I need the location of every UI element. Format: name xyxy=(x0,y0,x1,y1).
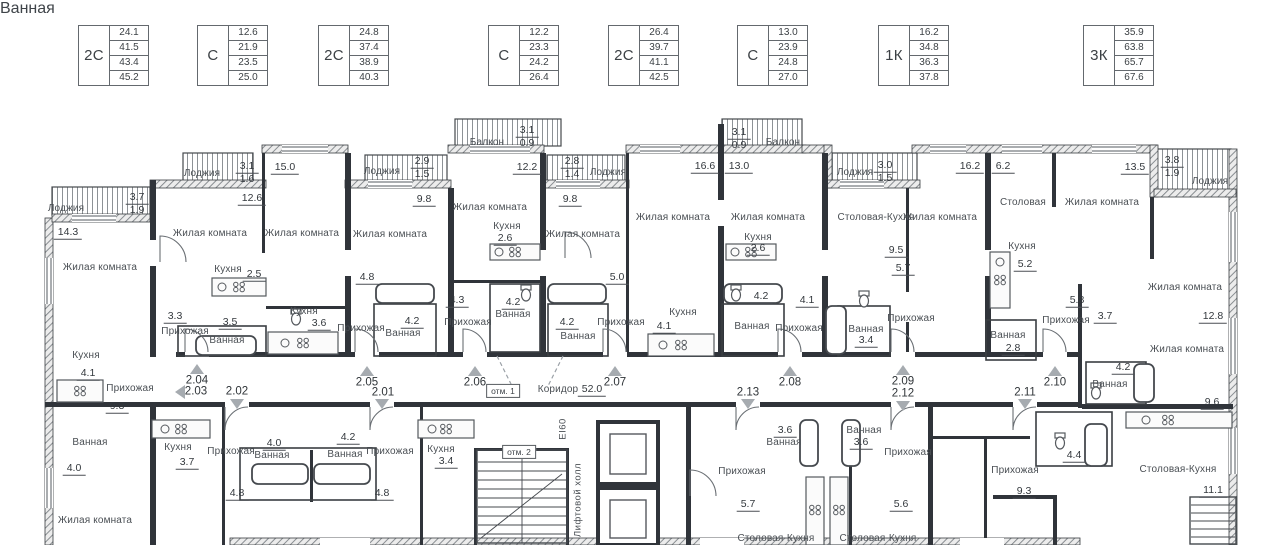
area-label: 3.6 xyxy=(850,437,873,450)
room-label: Прихожая xyxy=(207,447,255,457)
apartment-number-2-02[interactable]: 2.02 xyxy=(226,386,248,398)
elevation-mark-2: отм. 2 xyxy=(502,445,536,459)
entrance-direction-icon xyxy=(375,399,389,409)
entrance-direction-icon xyxy=(468,366,482,376)
room-label: Жилая комната xyxy=(63,263,137,273)
area-label: 12.8 xyxy=(1199,311,1227,324)
apartment-number-2-04[interactable]: 2.04 xyxy=(186,375,208,387)
area-label: 3.1 xyxy=(728,127,751,140)
area-label: 14.3 xyxy=(54,227,82,240)
area-label: 3.4 xyxy=(435,456,458,469)
dashed-guides xyxy=(497,356,563,386)
room-label: Жилая комната xyxy=(58,516,132,526)
apartment-number-2-08[interactable]: 2.08 xyxy=(779,377,801,389)
area-label: 13.0 xyxy=(725,161,753,174)
room-label: Кухня xyxy=(72,351,100,361)
room-label: Ванная xyxy=(766,438,801,448)
area-label: 13.5 xyxy=(1121,162,1149,175)
area-label: 3.0 xyxy=(874,160,897,173)
corridor-label: Коридор xyxy=(538,385,579,395)
area-label: 4.2 xyxy=(502,297,525,310)
apartment-number-2-13[interactable]: 2.13 xyxy=(737,387,759,399)
room-label: Лоджия xyxy=(837,168,873,178)
room-label: Кухня xyxy=(290,307,318,317)
room-label: Ванная xyxy=(254,451,289,461)
area-label: 1.9 xyxy=(1161,167,1184,180)
area-label: 2.8 xyxy=(561,156,584,169)
room-label: Лоджия xyxy=(590,168,626,178)
room-label: Ванная xyxy=(846,426,881,436)
room-label: Балкон xyxy=(766,138,800,148)
room-label: Прихожая xyxy=(106,384,154,394)
room-label: Жилая комната xyxy=(731,213,805,223)
room-label: Прихожая xyxy=(1042,316,1090,326)
entrance-direction-icon xyxy=(360,366,374,376)
room-label: Столовая-Кухня xyxy=(840,534,917,544)
floor-plan-page: 2С24.141.543.445.2 С12.621.923.525.0 2С2… xyxy=(0,0,1280,545)
area-label: 4.2 xyxy=(1112,362,1135,375)
area-label: 3.7 xyxy=(126,192,149,205)
area-label: 16.6 xyxy=(691,161,719,174)
area-label: 2.6 xyxy=(747,243,770,256)
area-label: 2.5 xyxy=(243,269,266,282)
area-label: 1.6 xyxy=(236,173,259,186)
area-label: 9.8 xyxy=(413,194,436,207)
area-label: 4.0 xyxy=(63,463,86,476)
room-label: Ванная xyxy=(560,332,595,342)
area-label: 4.1 xyxy=(653,321,676,334)
room-label: Прихожая xyxy=(444,318,492,328)
area-label: 3.7 xyxy=(176,457,199,470)
area-label: 1.4 xyxy=(561,168,584,181)
area-label: 4.4 xyxy=(1063,450,1086,463)
area-label: 4.0 xyxy=(263,438,286,451)
room-label: Жилая комната xyxy=(265,229,339,239)
area-label: 16.2 xyxy=(956,161,984,174)
room-label: Ванная xyxy=(734,322,769,332)
room-label: Кухня xyxy=(427,445,455,455)
room-label: Балкон xyxy=(470,138,504,148)
entrance-direction-icon xyxy=(1048,366,1062,376)
room-label: Жилая комната xyxy=(903,213,977,223)
area-label: 3.6 xyxy=(774,425,797,438)
area-label: 3.3 xyxy=(164,311,187,324)
entrance-direction-icon xyxy=(896,365,910,375)
area-label: 9.3 xyxy=(106,401,129,414)
room-label: Прихожая xyxy=(161,327,209,337)
area-label: 4.3 xyxy=(446,295,469,308)
room-label: Лоджия xyxy=(364,167,400,177)
area-label: 4.1 xyxy=(796,295,819,308)
area-label: 9.5 xyxy=(885,245,908,258)
entrance-direction-icon xyxy=(175,385,185,399)
room-label: Жилая комната xyxy=(353,230,427,240)
area-label: 4.8 xyxy=(356,272,379,285)
room-label: Ванная xyxy=(1092,380,1127,390)
area-label: 0.9 xyxy=(728,139,751,152)
area-label: 1.5 xyxy=(411,168,434,181)
room-label: Прихожая xyxy=(884,448,932,458)
area-label: 1.9 xyxy=(126,204,149,217)
apartment-number-2-09[interactable]: 2.09 xyxy=(892,376,914,388)
area-label: 3.8 xyxy=(1161,155,1184,168)
apartment-number-2-10[interactable]: 2.10 xyxy=(1044,377,1066,389)
room-label: Ванная xyxy=(327,450,362,460)
room-label: Лоджия xyxy=(1192,177,1228,187)
room-label: Ванная xyxy=(990,331,1025,341)
area-label: 12.6 xyxy=(238,193,266,206)
area-label: 11.1 xyxy=(1199,485,1227,498)
room-label: Жилая комната xyxy=(1065,198,1139,208)
area-label: 9.3 xyxy=(1013,486,1036,499)
room-label: Ванная xyxy=(72,438,107,448)
area-label: 3.6 xyxy=(308,318,331,331)
room-label: Кухня xyxy=(164,443,192,453)
area-label: 12.2 xyxy=(513,162,541,175)
room-label: Жилая комната xyxy=(636,213,710,223)
apartment-number-2-05[interactable]: 2.05 xyxy=(356,377,378,389)
area-label: 2.8 xyxy=(1002,343,1025,356)
room-label: Жилая комната xyxy=(173,229,247,239)
room-label: Жилая комната xyxy=(1150,345,1224,355)
area-label: 15.0 xyxy=(271,162,299,175)
room-label: Ванная xyxy=(495,310,530,320)
room-label: Прихожая xyxy=(718,467,766,477)
area-label: 9.8 xyxy=(559,194,582,207)
entrance-direction-icon xyxy=(230,399,244,409)
room-label: Столовая xyxy=(1000,198,1046,208)
area-label: 4.2 xyxy=(556,317,579,330)
room-label: Кухня xyxy=(214,265,242,275)
area-label: 4.2 xyxy=(401,316,424,329)
room-label: Кухня xyxy=(1008,242,1036,252)
room-label: Жилая комната xyxy=(1148,283,1222,293)
room-label: Кухня xyxy=(669,308,697,318)
area-label: 4.1 xyxy=(77,368,100,381)
elevator-hall-label: Лифтовой холл xyxy=(573,463,583,537)
area-label: 1.5 xyxy=(874,172,897,185)
area-label: 5.7 xyxy=(737,499,760,512)
room-label: Прихожая xyxy=(775,324,823,334)
entrance-direction-icon xyxy=(783,366,797,376)
apartment-number-2-06[interactable]: 2.06 xyxy=(464,377,486,389)
apartment-number-2-01[interactable]: 2.01 xyxy=(372,387,394,399)
area-label: 4.2 xyxy=(750,291,773,304)
room-label: Кухня xyxy=(493,222,521,232)
room-label: Прихожая xyxy=(991,466,1039,476)
entrance-direction-icon xyxy=(190,364,204,374)
area-label: 0.9 xyxy=(516,137,539,150)
area-label: 5.7 xyxy=(892,263,915,276)
room-label: Жилая комната xyxy=(453,203,527,213)
area-label: 3.7 xyxy=(1094,311,1117,324)
elevation-mark-1: отм. 1 xyxy=(486,384,520,398)
area-label: 5.6 xyxy=(890,499,913,512)
room-label: Лоджия xyxy=(184,169,220,179)
entrance-direction-icon xyxy=(1018,399,1032,409)
entrance-direction-icon xyxy=(896,401,910,411)
area-label: 2.9 xyxy=(411,156,434,169)
area-label: 4.8 xyxy=(371,488,394,501)
area-label: 2.6 xyxy=(494,233,517,246)
area-label: 9.6 xyxy=(1201,397,1224,410)
corridor-area: 52.0 xyxy=(578,384,606,397)
area-label: 3.1 xyxy=(236,161,259,174)
apartment-number-2-03[interactable]: 2.03 xyxy=(185,386,207,398)
apartment-number-2-12[interactable]: 2.12 xyxy=(892,388,914,400)
room-label: Ванная xyxy=(385,329,420,339)
fire-rating-label: EI60 xyxy=(558,418,568,440)
apartment-number-2-11[interactable]: 2.11 xyxy=(1014,387,1036,399)
room-label: Лоджия xyxy=(48,204,84,214)
room-label: Столовая-Кухня xyxy=(738,534,815,544)
entrance-direction-icon xyxy=(608,366,622,376)
area-label: 5.8 xyxy=(1066,295,1089,308)
room-label: Жилая комната xyxy=(546,230,620,240)
area-label: 4.8 xyxy=(226,488,249,501)
room-label: Прихожая xyxy=(366,447,414,457)
room-label: Прихожая xyxy=(887,314,935,324)
apartment-number-2-07[interactable]: 2.07 xyxy=(604,377,626,389)
room-label: Столовая-Кухня xyxy=(1140,465,1217,475)
area-label: 6.2 xyxy=(992,161,1015,174)
room-label: Прихожая xyxy=(337,324,385,334)
elevator-shafts xyxy=(598,422,658,545)
staircase xyxy=(477,450,567,543)
area-label: 5.0 xyxy=(606,272,629,285)
area-label: 3.4 xyxy=(855,335,878,348)
room-label: Прихожая xyxy=(597,318,645,328)
area-label: 3.5 xyxy=(219,317,242,330)
area-label: 5.2 xyxy=(1014,259,1037,272)
area-label: 3.1 xyxy=(516,125,539,138)
entrance-direction-icon xyxy=(741,399,755,409)
room-label: Ванная xyxy=(209,336,244,346)
area-label: 4.2 xyxy=(337,432,360,445)
